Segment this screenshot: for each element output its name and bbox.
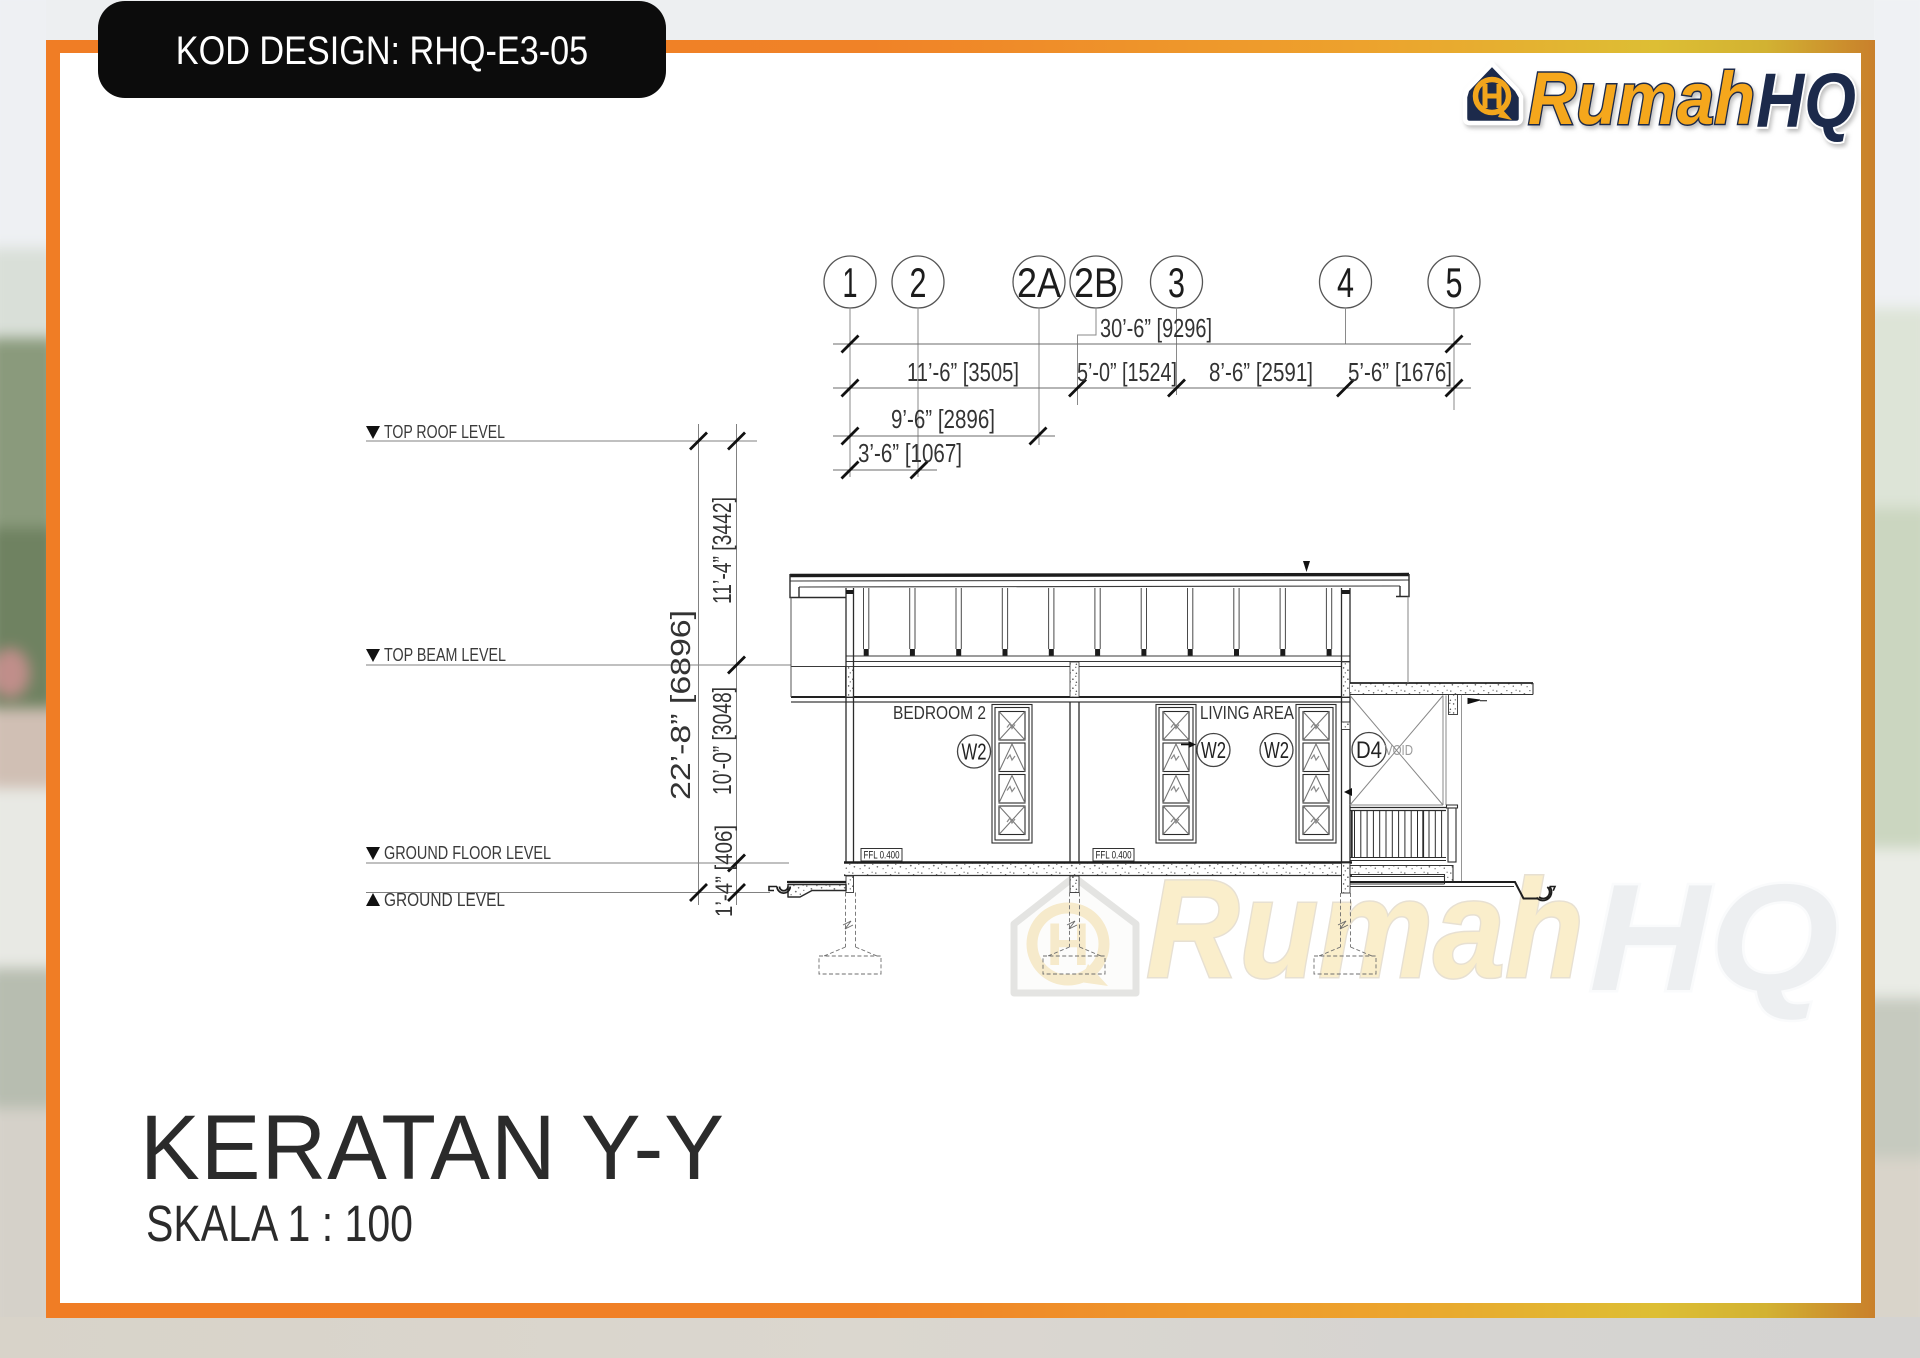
svg-text:KERATAN Y-Y: KERATAN Y-Y — [140, 1097, 725, 1199]
svg-text:22’-8” [6896]: 22’-8” [6896] — [665, 610, 696, 800]
svg-text:1’-4” [406]: 1’-4” [406] — [711, 825, 738, 917]
svg-text:5’-0” [1524]: 5’-0” [1524] — [1077, 357, 1177, 387]
svg-text:D4: D4 — [1356, 737, 1382, 764]
svg-text:TOP BEAM LEVEL: TOP BEAM LEVEL — [384, 645, 506, 665]
svg-text:SKALA 1 : 100: SKALA 1 : 100 — [146, 1195, 413, 1252]
svg-text:H: H — [1046, 911, 1089, 978]
svg-text:3: 3 — [1168, 259, 1185, 306]
svg-text:2: 2 — [910, 259, 927, 306]
svg-text:GROUND LEVEL: GROUND LEVEL — [384, 890, 505, 910]
svg-text:8’-6” [2591]: 8’-6” [2591] — [1209, 357, 1313, 387]
svg-text:FFL 0.400: FFL 0.400 — [1096, 850, 1132, 862]
svg-text:5: 5 — [1446, 259, 1463, 306]
svg-text:1: 1 — [843, 259, 858, 306]
svg-text:4: 4 — [1337, 259, 1354, 306]
svg-text:Rumah: Rumah — [1528, 57, 1755, 140]
svg-text:W2: W2 — [1264, 737, 1289, 763]
svg-text:BEDROOM 2: BEDROOM 2 — [893, 703, 986, 723]
svg-text:W2: W2 — [962, 739, 987, 765]
svg-text:2A: 2A — [1017, 259, 1061, 306]
svg-text:GROUND FLOOR LEVEL: GROUND FLOOR LEVEL — [384, 843, 551, 863]
svg-text:11’-4” [3442]: 11’-4” [3442] — [707, 497, 737, 604]
svg-text:HQ: HQ — [1589, 853, 1839, 1023]
svg-text:LIVING AREA: LIVING AREA — [1200, 703, 1294, 723]
svg-text:TOP ROOF LEVEL: TOP ROOF LEVEL — [384, 422, 505, 442]
svg-text:HQ: HQ — [1756, 58, 1856, 144]
svg-text:2B: 2B — [1074, 259, 1118, 306]
svg-text:30’-6” [9296]: 30’-6” [9296] — [1100, 313, 1212, 343]
svg-text:5’-6” [1676]: 5’-6” [1676] — [1348, 357, 1452, 387]
svg-text:3’-6” [1067]: 3’-6” [1067] — [858, 438, 962, 468]
svg-text:VOID: VOID — [1385, 743, 1413, 759]
svg-text:11’-6” [3505]: 11’-6” [3505] — [907, 357, 1019, 387]
svg-text:FFL 0.400: FFL 0.400 — [864, 850, 900, 862]
svg-text:9’-6” [2896]: 9’-6” [2896] — [891, 404, 995, 434]
svg-text:10’-0” [3048]: 10’-0” [3048] — [707, 687, 737, 795]
svg-text:W2: W2 — [1201, 737, 1226, 763]
